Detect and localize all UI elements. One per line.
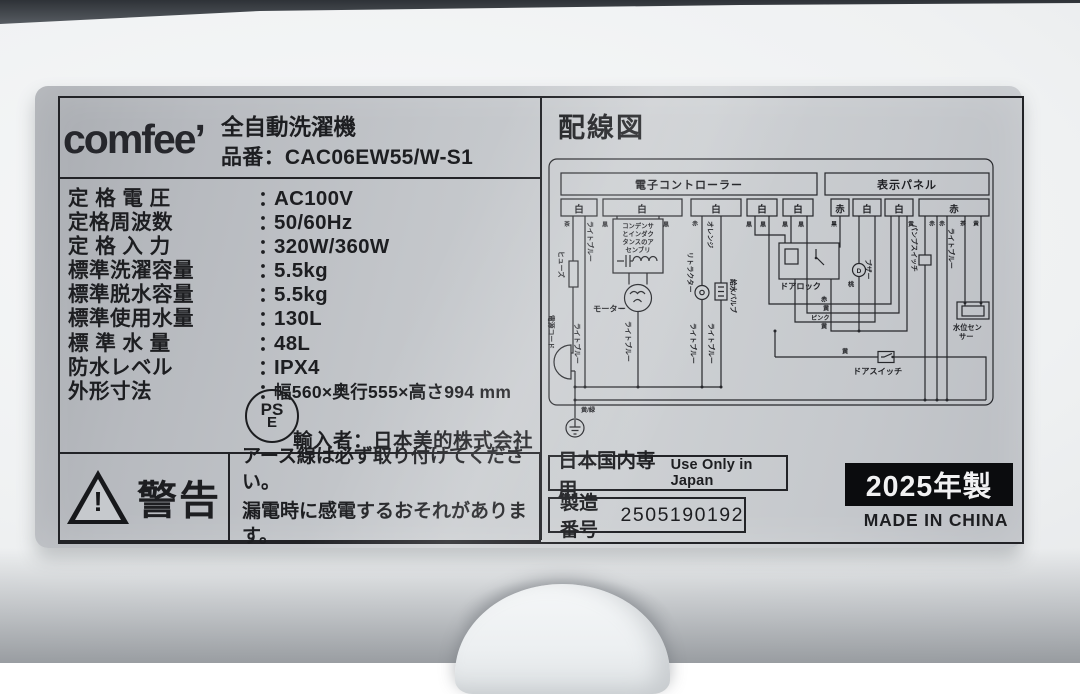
rating-label: comfee’ 全自動洗濯機 品番：CAC06EW55/W-S1 定 格 電 圧… [35, 86, 1022, 548]
warning-divider [228, 454, 230, 540]
warning-header: ! 警告 [60, 454, 228, 540]
svg-text:ライトブルー: ライトブルー [689, 323, 698, 364]
warning-title: 警告 [137, 468, 221, 526]
svg-text:赤: 赤 [929, 220, 935, 228]
domestic-use-box: 日本国内専用 Use Only in Japan [548, 455, 788, 491]
sensor-pins [965, 302, 981, 306]
warning-box: ! 警告 アース線は必ず取り付けてください。 漏電時に感電するおそれがあります。 [58, 452, 541, 542]
retractor-symbol [695, 286, 709, 300]
svg-text:赤: 赤 [835, 204, 845, 216]
svg-text:白: 白 [894, 204, 904, 216]
svg-text:赤: 赤 [692, 220, 698, 228]
svg-text:白: 白 [637, 204, 647, 216]
pse-mark: PS E [245, 389, 299, 443]
power-cord-label: 電源コード [547, 315, 556, 349]
plug-symbol [554, 345, 571, 379]
svg-text:黒: 黒 [663, 221, 669, 229]
svg-text:赤: 赤 [949, 204, 959, 216]
svg-text:赤: 赤 [821, 296, 828, 304]
svg-text:茶: 茶 [563, 220, 570, 228]
model-label: 品番 [221, 146, 264, 169]
svg-text:黄: 黄 [842, 348, 849, 356]
svg-text:コンデンサ: コンデンサ [622, 221, 653, 230]
svg-text:ライトブルー: ライトブルー [573, 323, 582, 364]
svg-text:黒: 黒 [782, 221, 788, 229]
product-type: 全自動洗濯機 [221, 110, 356, 142]
model-value: CAC06EW55/W-S1 [285, 146, 473, 169]
domestic-en: Use Only in Japan [671, 457, 786, 489]
svg-text:黄: 黄 [823, 305, 830, 313]
svg-text:白: 白 [574, 204, 584, 216]
controller-label: 電子コントローラー [635, 179, 743, 192]
model-sep: ： [264, 146, 285, 169]
motor-windings [630, 292, 645, 303]
wiring-shapes [549, 159, 993, 437]
serial-label: 製造番号 [560, 488, 603, 542]
valve-coil [718, 287, 724, 296]
pump-switch-label: パンプスイッチ [910, 224, 919, 272]
svg-text:黒: 黒 [602, 221, 608, 229]
wiring-diagram: 電子コントローラー 表示パネル 白 白 白 白 白 赤 白 白 赤 茶 黒 黒 … [545, 155, 1015, 465]
water-valve-label: 給水バルブ [729, 279, 738, 313]
svg-text:ライトブルー: ライトブルー [624, 321, 633, 362]
svg-text:黒: 黒 [760, 221, 766, 229]
svg-text:とインダク: とインダク [622, 229, 653, 238]
machine-top-edge [0, 0, 1080, 26]
svg-text:ライトブルー: ライトブルー [586, 221, 595, 262]
pse-e: E [267, 417, 277, 429]
svg-text:黒: 黒 [798, 221, 804, 229]
svg-text:赤: 赤 [939, 220, 945, 228]
svg-text:タンスのア: タンスのア [622, 237, 654, 246]
spec-divider [58, 177, 542, 179]
svg-text:黒: 黒 [746, 221, 752, 229]
warning-text: アース線は必ず取り付けてください。 漏電時に感電するおそれがあります。 [242, 454, 534, 540]
warning-line-1: アース線は必ず取り付けてください。 [242, 444, 534, 495]
appliance-photo: comfee’ 全自動洗濯機 品番：CAC06EW55/W-S1 定 格 電 圧… [0, 0, 1080, 663]
door-lock-inner [785, 249, 798, 264]
buzzer-letter: D [857, 268, 862, 275]
wiring-diagram-title: 配線図 [558, 106, 645, 145]
svg-text:ピンク: ピンク [811, 314, 830, 322]
water-sensor-inner [962, 306, 984, 316]
pump-switch-symbol [919, 255, 931, 265]
warning-bang: ! [93, 486, 102, 518]
ground-marks [570, 420, 581, 434]
svg-text:黄: 黄 [821, 323, 828, 331]
motor-label: モーター [593, 304, 626, 314]
display-panel-label: 表示パネル [876, 178, 937, 192]
ground-wire-label: 黄/緑 [581, 406, 596, 414]
water-sensor-label-2: サー [959, 332, 973, 341]
door-lock-label: ドアロック [780, 281, 821, 291]
svg-text:桃: 桃 [848, 281, 855, 289]
retractor-label: リトラクター [686, 252, 695, 293]
serial-value: 2505190192 [621, 504, 744, 527]
brand-logo: comfee’ [63, 116, 204, 163]
svg-text:茶: 茶 [959, 220, 966, 228]
retractor-inner [700, 290, 704, 294]
svg-text:白: 白 [793, 204, 803, 216]
wiring-text: 電子コントローラー 表示パネル 白 白 白 白 白 赤 白 白 赤 茶 黒 黒 … [547, 178, 982, 415]
fuse-symbol [569, 261, 578, 287]
motor-symbol [625, 285, 652, 312]
svg-text:ライトブルー: ライトブルー [947, 228, 956, 269]
svg-text:黄: 黄 [973, 220, 979, 228]
serial-box: 製造番号 2505190192 [548, 497, 746, 533]
diagram-border [549, 159, 993, 405]
buzzer-label: ブザー [864, 259, 873, 280]
svg-text:白: 白 [862, 204, 872, 216]
svg-text:オレンジ: オレンジ [706, 221, 714, 248]
fuse-label: ヒューズ [557, 251, 566, 278]
made-in-label: MADE IN CHINA [841, 510, 1031, 531]
model-number-row: 品番：CAC06EW55/W-S1 [221, 141, 473, 171]
warning-line-2: 漏電時に感電するおそれがあります。 [242, 499, 534, 550]
svg-text:白: 白 [757, 204, 767, 216]
svg-text:黒: 黒 [831, 220, 837, 228]
svg-text:ライトブルー: ライトブルー [707, 323, 716, 364]
warning-triangle-icon: ! [67, 470, 129, 524]
spec-row-voltage: 定 格 電 圧：AC100V [68, 181, 534, 205]
door-switch-contact [881, 354, 893, 358]
capacitor-inductor-symbol [617, 255, 657, 267]
junction-dots [574, 257, 983, 402]
door-switch-label: ドアスイッチ [853, 367, 902, 376]
manufacture-year-badge: 2025年製 [845, 463, 1013, 506]
door-lock-contact [816, 249, 824, 265]
svg-text:センブリ: センブリ [626, 245, 651, 254]
spec-table: 定 格 電 圧：AC100V 定格周波数：50/60Hz 定 格 入 力：320… [68, 181, 534, 398]
door-lock-box [779, 243, 839, 279]
water-sensor-label-1: 水位セン [952, 323, 982, 332]
svg-text:白: 白 [711, 204, 721, 216]
